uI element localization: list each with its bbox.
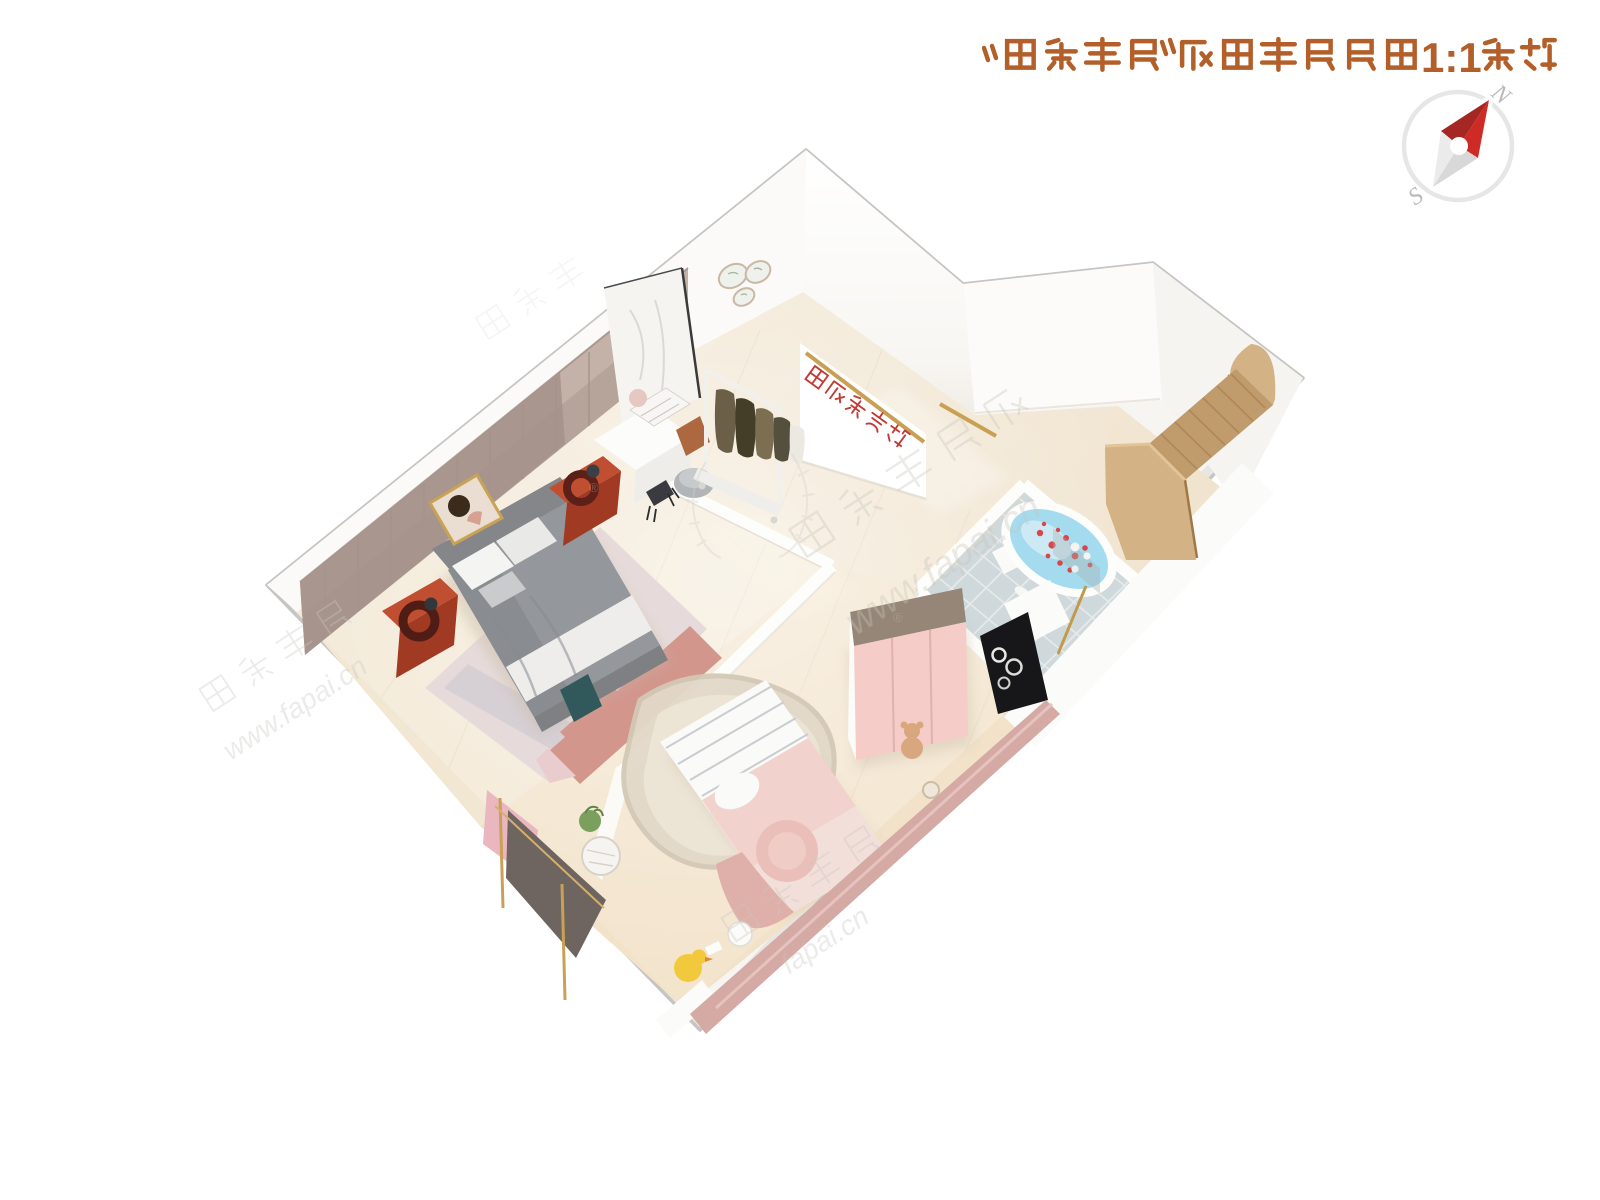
svg-text:1:1: 1:1	[1421, 34, 1482, 81]
svg-text:®: ®	[589, 480, 599, 495]
svg-text:®: ®	[893, 610, 903, 625]
